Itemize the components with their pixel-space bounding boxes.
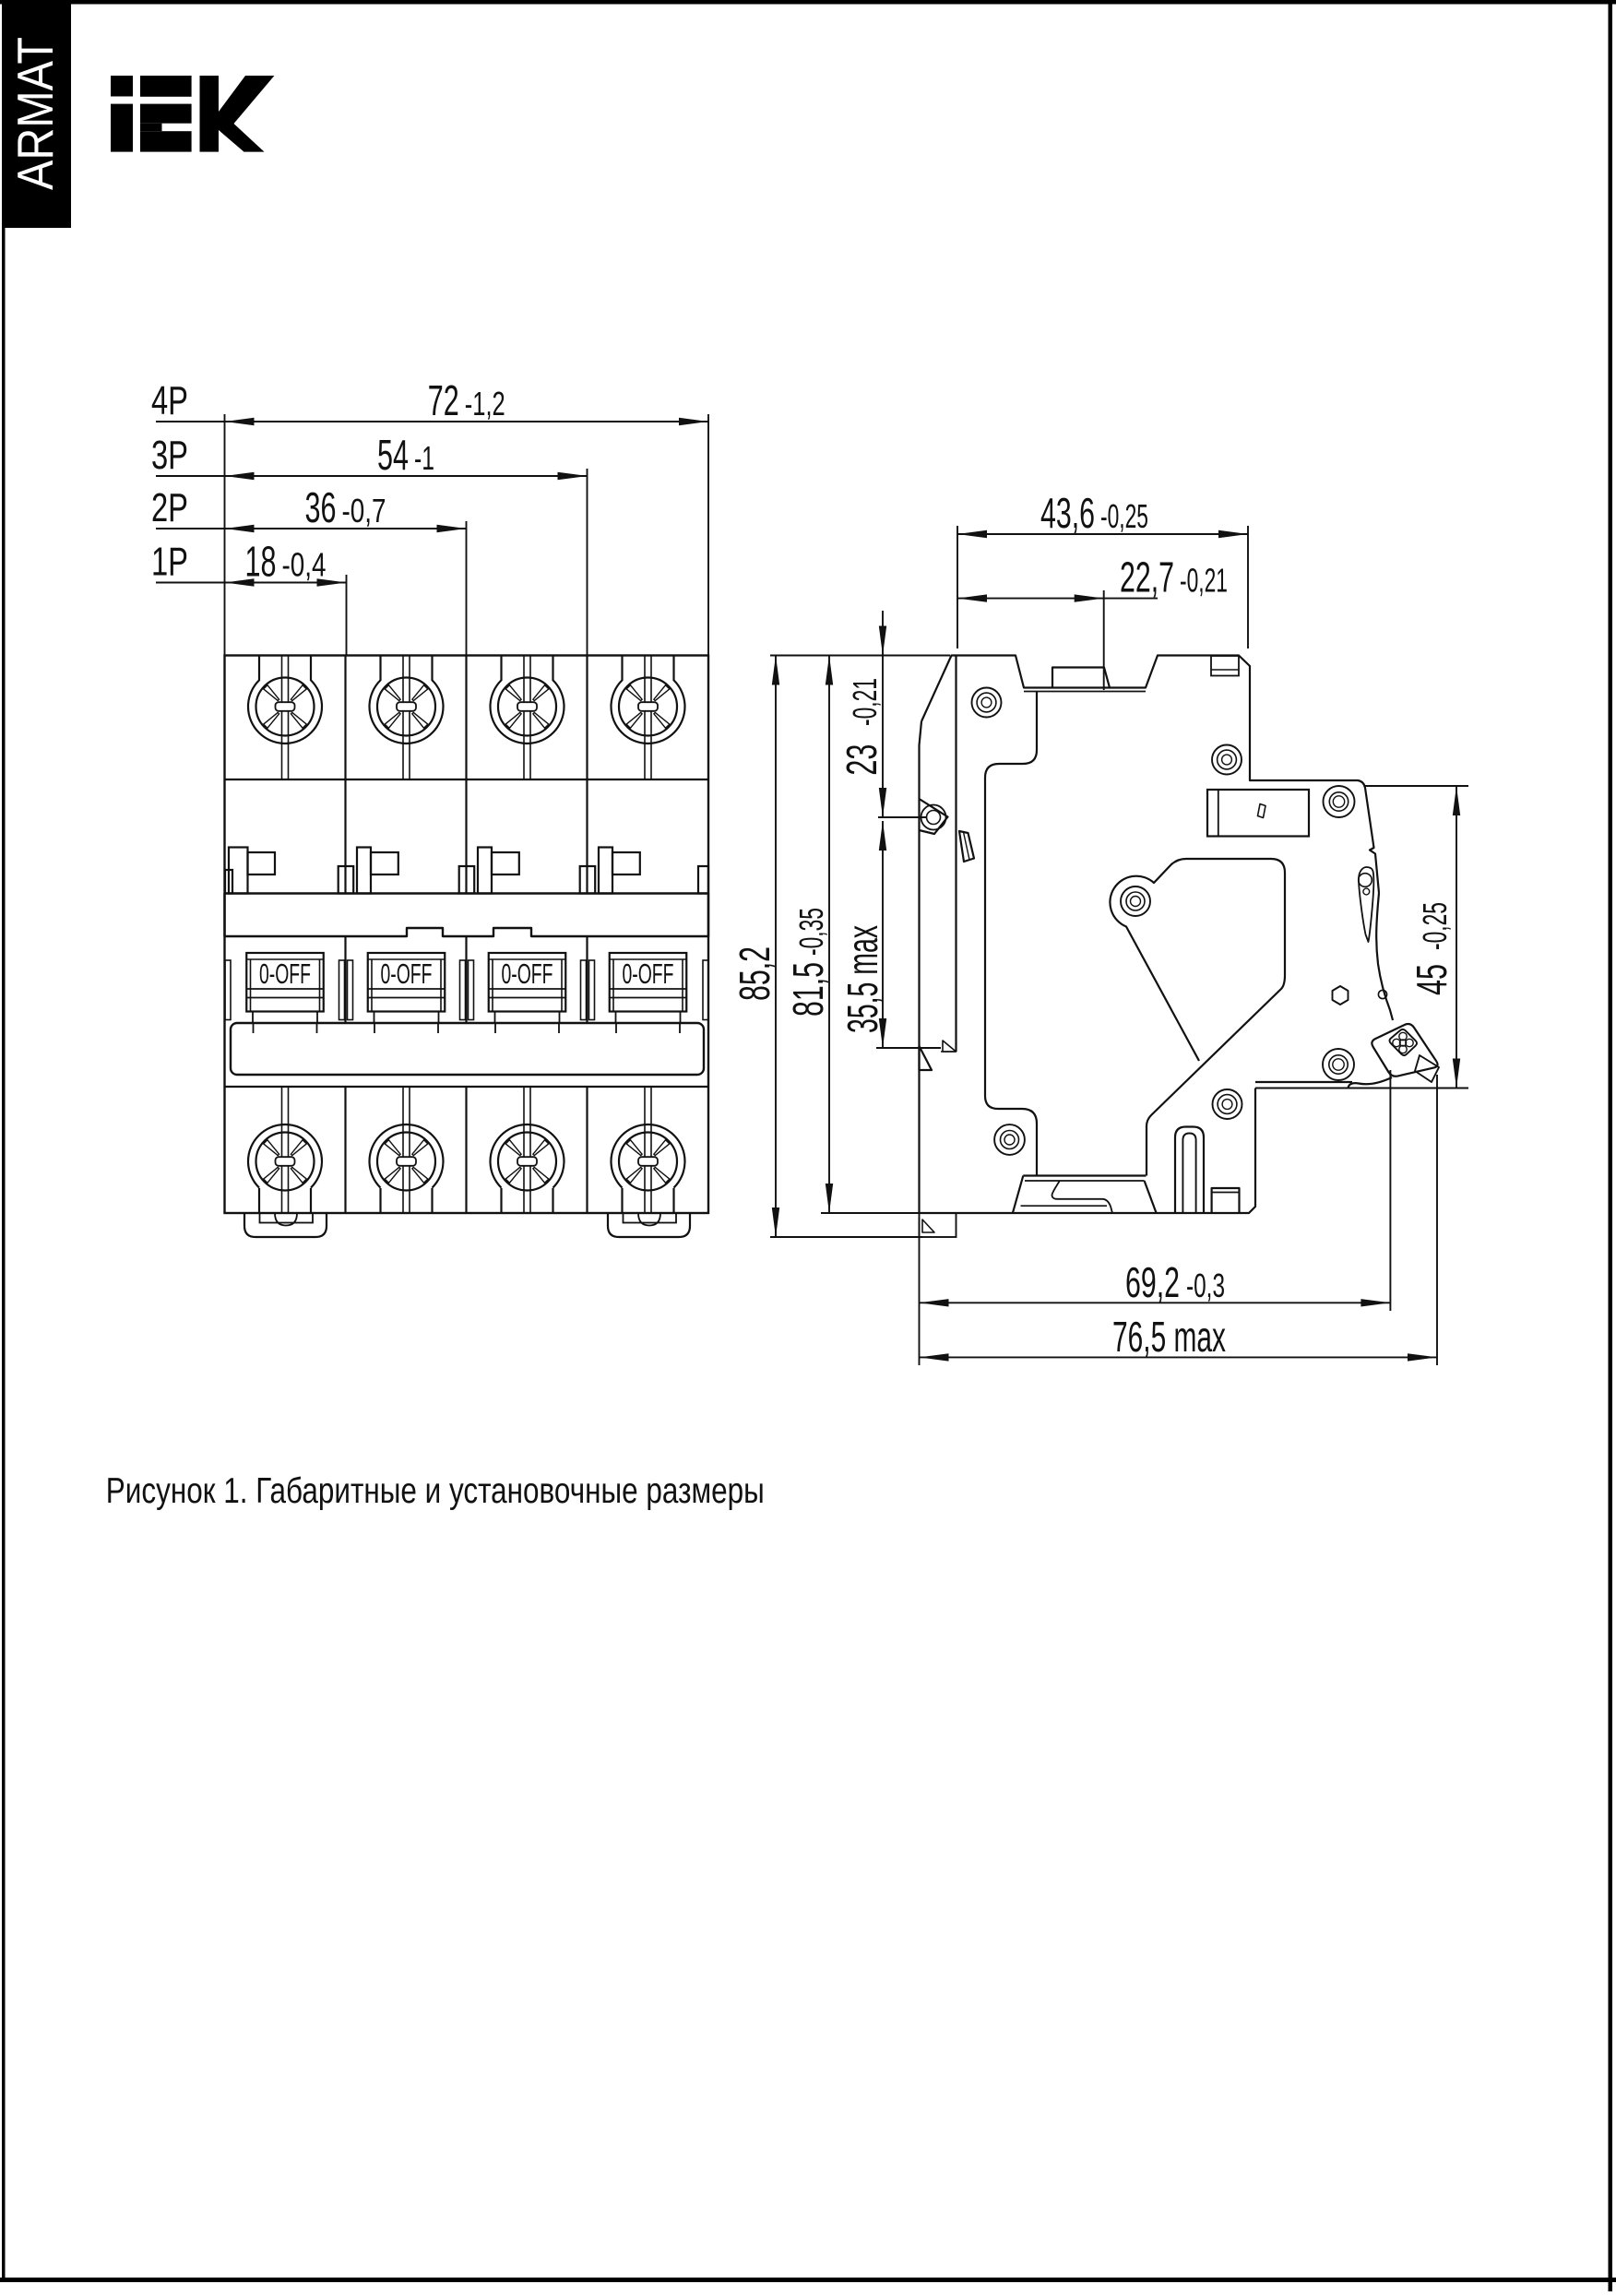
svg-text:22,7: 22,7: [1120, 553, 1174, 601]
svg-text:-0,25: -0,25: [1100, 497, 1148, 535]
svg-text:18: 18: [245, 538, 277, 586]
svg-text:-0,4: -0,4: [282, 546, 327, 584]
svg-text:0-OFF: 0-OFF: [259, 958, 311, 990]
svg-text:72: 72: [428, 376, 459, 424]
svg-text:0-OFF: 0-OFF: [502, 958, 553, 990]
svg-text:23: 23: [838, 744, 885, 776]
svg-text:45: 45: [1408, 964, 1456, 995]
svg-text:0-OFF: 0-OFF: [623, 958, 674, 990]
svg-text:76,5 max: 76,5 max: [1112, 1313, 1226, 1361]
svg-text:4P: 4P: [151, 378, 188, 423]
svg-text:-0,3: -0,3: [1186, 1267, 1225, 1304]
svg-text:ARMAT: ARMAT: [6, 37, 64, 190]
svg-text:1P: 1P: [151, 540, 188, 585]
svg-text:Рисунок 1. Габаритные и устано: Рисунок 1. Габаритные и установочные раз…: [106, 1471, 765, 1511]
svg-text:-0,7: -0,7: [342, 492, 386, 529]
svg-text:69,2: 69,2: [1125, 1258, 1180, 1306]
svg-text:0-OFF: 0-OFF: [381, 958, 433, 990]
svg-text:36: 36: [305, 483, 337, 531]
svg-text:-0,35: -0,35: [792, 908, 830, 956]
svg-text:2P: 2P: [151, 485, 188, 530]
svg-text:-1: -1: [414, 439, 434, 477]
svg-text:81,5: 81,5: [784, 962, 832, 1017]
svg-text:43,6: 43,6: [1040, 489, 1095, 537]
svg-text:-1,2: -1,2: [465, 385, 505, 422]
svg-text:3P: 3P: [151, 433, 188, 478]
svg-text:-0,21: -0,21: [846, 678, 884, 726]
svg-text:-0,21: -0,21: [1180, 562, 1228, 600]
svg-text:85,2: 85,2: [731, 946, 778, 1001]
svg-text:54: 54: [377, 431, 409, 479]
svg-text:-0,25: -0,25: [1416, 902, 1454, 950]
svg-text:35,5 max: 35,5 max: [838, 925, 886, 1033]
